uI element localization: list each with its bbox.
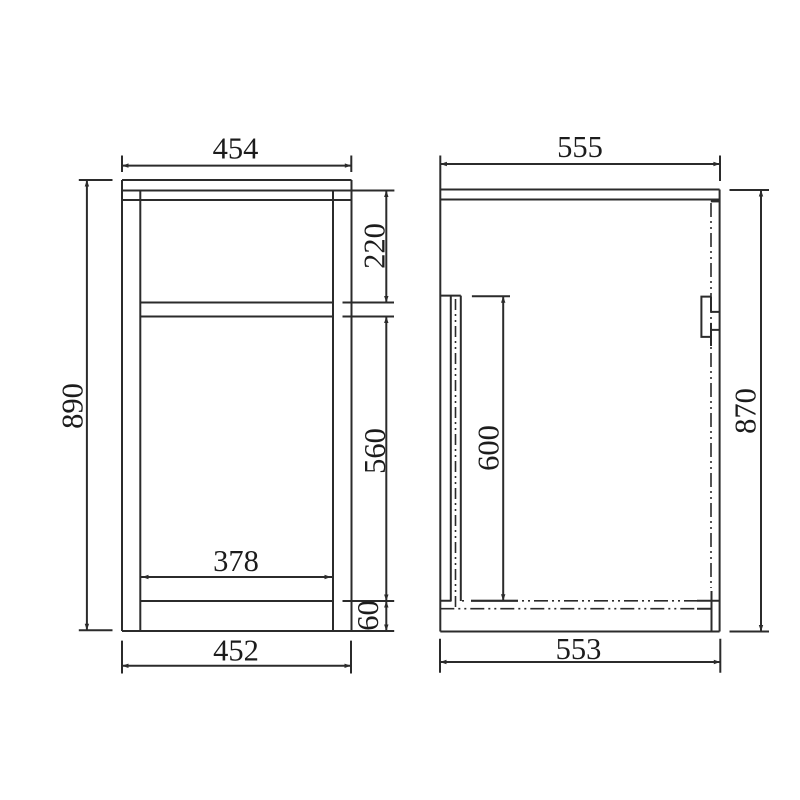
svg-text:890: 890: [56, 383, 90, 429]
svg-text:600: 600: [472, 425, 506, 471]
svg-text:378: 378: [213, 544, 259, 578]
svg-text:870: 870: [729, 388, 763, 434]
svg-text:560: 560: [358, 428, 392, 474]
svg-text:220: 220: [358, 223, 392, 269]
svg-text:60: 60: [351, 600, 385, 631]
svg-text:555: 555: [557, 130, 603, 164]
svg-text:454: 454: [213, 131, 259, 165]
svg-text:553: 553: [556, 632, 602, 666]
svg-text:452: 452: [213, 633, 259, 667]
